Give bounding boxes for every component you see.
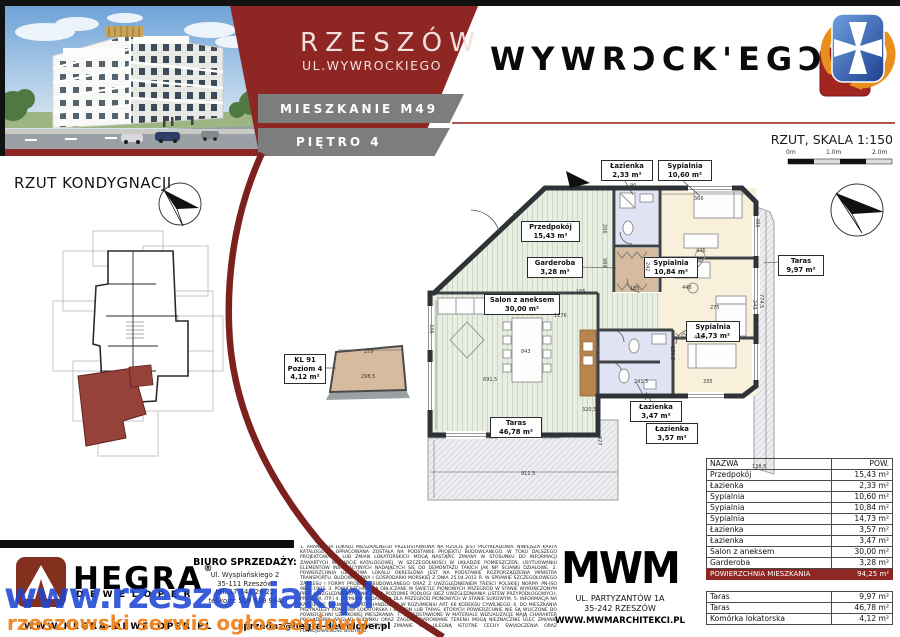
dimension-text: 989: [601, 258, 607, 268]
cell-room-area: 2,33 m²: [832, 481, 893, 492]
table-row: Sypialnia14,73 m²: [707, 514, 893, 525]
dimension-text: 298,5: [361, 374, 375, 380]
col-header-name: NAZWA: [707, 459, 832, 470]
cell-room-name: Przedpokój: [707, 470, 832, 481]
window: [688, 392, 724, 400]
dimension-text: 774,5: [758, 294, 764, 308]
dimension-text: 159,5: [669, 346, 675, 360]
north-arrow-plan: [831, 184, 884, 236]
cell-room-area: 9,97 m²: [832, 592, 893, 603]
dimension-text: 138,5: [752, 464, 766, 470]
cell-room-name: Garderoba: [707, 558, 832, 569]
room-area: 3,57 m²: [648, 434, 696, 443]
north-arrow-keyplan: [159, 183, 201, 226]
room-area: 9,97 m²: [780, 266, 822, 275]
dimension-text: 336: [428, 324, 434, 334]
dimension-text: 448: [682, 285, 692, 291]
dimension-text: 1176: [554, 313, 567, 319]
room-area: 3,47 m²: [632, 412, 680, 421]
table-row: Sypialnia10,84 m²: [707, 503, 893, 514]
room-label: Łazienka3,57 m²: [646, 423, 698, 444]
watermark-tagline: rzeszowski serwis ogłoszeniowy: [7, 611, 369, 635]
room-name: Sypialnia: [688, 323, 738, 332]
dimension-text: 241,5: [634, 379, 648, 385]
room-name: Łazienka: [632, 403, 680, 412]
cell-room-name: Taras: [707, 603, 832, 614]
room-name: Garderoba: [529, 259, 581, 268]
table-row: Taras9,97 m²: [707, 592, 893, 603]
table-header-row: NAZWA POW.: [707, 459, 893, 470]
cell-room-name: Sypialnia: [707, 514, 832, 525]
cell-room-name: Łazienka: [707, 481, 832, 492]
storage-label: KL 91Poziom 44,12 m²: [284, 354, 326, 384]
cell-room-area: 3,57 m²: [832, 525, 893, 536]
room-name: Przedpokój: [523, 223, 578, 232]
cell-room-area: 14,73 m²: [832, 514, 893, 525]
room-area: 3,28 m²: [529, 268, 581, 277]
cell-room-area: 30,00 m²: [832, 547, 893, 558]
dimension-text: 242: [644, 262, 650, 272]
room-name: Łazienka: [603, 162, 651, 171]
dimension-text: 691,5: [483, 377, 497, 383]
col-header-area: POW.: [832, 459, 893, 470]
room-name: Salon z aneksem: [486, 296, 558, 305]
cell-room-area: 3,28 m²: [832, 558, 893, 569]
room-area: 46,78 m²: [492, 428, 540, 437]
room-label: Salon z aneksem30,00 m²: [484, 294, 560, 315]
room-label: Łazienka3,47 m²: [630, 401, 682, 422]
apartment-area-table: NAZWA POW. Przedpokój15,43 m²Łazienka2,3…: [706, 458, 893, 580]
cell-room-name: Sypialnia: [707, 503, 832, 514]
dimension-text: 335: [703, 379, 713, 385]
cell-room-area: 10,60 m²: [832, 492, 893, 503]
room-label: Łazienka2,33 m²: [601, 160, 653, 181]
table-row: Salon z aneksem30,00 m²: [707, 547, 893, 558]
room-name: Łazienka: [648, 425, 696, 434]
room-label: Sypialnia10,84 m²: [644, 257, 698, 278]
cell-room-area: 94,25 m²: [832, 569, 893, 580]
window: [446, 431, 486, 439]
table-row: Sypialnia10,60 m²: [707, 492, 893, 503]
table-row: Taras46,78 m²: [707, 603, 893, 614]
dimension-text: 165: [576, 289, 586, 295]
dimension-text: 843: [521, 349, 531, 355]
window: [426, 362, 434, 410]
cell-room-name: Salon z aneksem: [707, 547, 832, 558]
room-area: 10,84 m²: [646, 268, 696, 277]
extras-area-table: Taras9,97 m²Taras46,78 m²Komórka lokator…: [706, 591, 893, 625]
table-row: Łazienka3,47 m²: [707, 536, 893, 547]
dimension-text: 912,5: [521, 471, 535, 477]
table-total-row: POWIERZCHNIA MIESZKANIA94,25 m²: [707, 569, 893, 580]
room-label: Taras9,97 m²: [778, 255, 824, 276]
room-label: Przedpokój15,43 m²: [521, 221, 580, 242]
dimension-text: 135: [630, 286, 640, 292]
room-name: Taras: [780, 257, 822, 266]
cell-room-name: Komórka lokatorska: [707, 614, 832, 625]
catalog-sheet: RZESZÓW UL.WYWROCKIEGO MIESZKANIE M49 PI…: [0, 0, 900, 637]
entrance-door-arc: [471, 210, 499, 231]
room-label: Taras46,78 m²: [490, 417, 542, 438]
dimension-text: 243: [751, 300, 757, 310]
dimension-text: 561: [426, 422, 432, 432]
cell-room-area: 46,78 m²: [832, 603, 893, 614]
window: [688, 184, 732, 192]
dimension-text: 275: [710, 305, 720, 311]
room-label: Sypialnia10,60 m²: [658, 160, 712, 181]
entrance-arrow-icon: [566, 171, 590, 188]
room-area: 15,43 m²: [523, 232, 578, 241]
room-area: 30,00 m²: [486, 305, 558, 314]
dimension-text: 366: [694, 196, 704, 202]
dimension-text: 446: [694, 335, 704, 341]
dimension-text: 90: [630, 183, 636, 189]
area-table: NAZWA POW. Przedpokój15,43 m²Łazienka2,3…: [706, 458, 893, 625]
room-name: Taras: [492, 419, 540, 428]
scale-bar: [788, 159, 892, 164]
dimension-text: 446: [696, 248, 706, 254]
cell-room-area: 4,12 m²: [832, 614, 893, 625]
cell-room-area: 3,47 m²: [832, 536, 893, 547]
dimension-text: 427: [596, 436, 602, 446]
dimension-text: 380: [754, 218, 760, 228]
table-row: Komórka lokatorska4,12 m²: [707, 614, 893, 625]
cell-room-name: POWIERZCHNIA MIESZKANIA: [707, 569, 832, 580]
cell-room-area: 15,43 m²: [832, 470, 893, 481]
room-name: Sypialnia: [646, 259, 696, 268]
table-row: Łazienka2,33 m²: [707, 481, 893, 492]
cell-room-name: Łazienka: [707, 525, 832, 536]
storage-label-line: KL 91: [286, 356, 324, 365]
dimension-text: 320,5: [582, 407, 596, 413]
room-name: Sypialnia: [660, 162, 710, 171]
cell-room-name: Sypialnia: [707, 492, 832, 503]
window: [752, 344, 760, 380]
table-row: Łazienka3,57 m²: [707, 525, 893, 536]
table-row: Garderoba3,28 m²: [707, 558, 893, 569]
cell-room-name: Łazienka: [707, 536, 832, 547]
room-area: 2,33 m²: [603, 171, 651, 180]
storage-label-line: 4,12 m²: [286, 373, 324, 382]
table-row: Przedpokój15,43 m²: [707, 470, 893, 481]
cell-room-name: Taras: [707, 592, 832, 603]
dimension-text: 206: [601, 224, 607, 234]
key-plan-drawing: [53, 231, 223, 456]
room-area: 10,60 m²: [660, 171, 710, 180]
dimension-text: 259: [364, 349, 374, 355]
storage-label-line: Poziom 4: [286, 365, 324, 374]
cell-room-area: 10,84 m²: [832, 503, 893, 514]
room-label: Garderoba3,28 m²: [527, 257, 583, 278]
